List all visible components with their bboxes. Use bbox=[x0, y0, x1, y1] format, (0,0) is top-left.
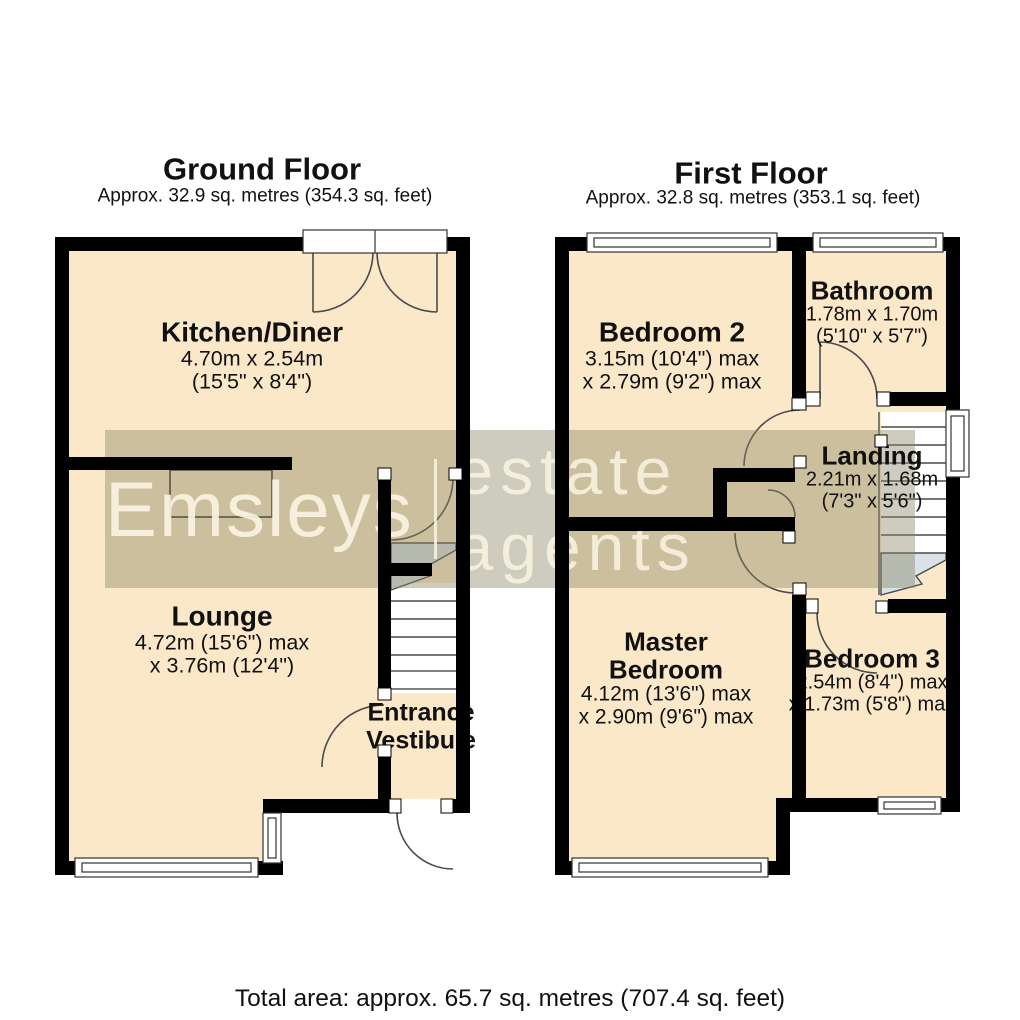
bedroom2-label: Bedroom 2 3.15m (10'4") max x 2.79m (9'2… bbox=[582, 318, 761, 395]
landing-dim-metric: 2.21m x 1.68m bbox=[806, 469, 938, 491]
kitchen-diner-dim-metric: 4.70m x 2.54m bbox=[161, 348, 343, 371]
lounge-dim-metric: 4.72m (15'6") max bbox=[135, 632, 309, 655]
ground-floor-title: Ground Floor bbox=[163, 152, 361, 185]
lounge-dim-imperial: x 3.76m (12'4") bbox=[135, 655, 309, 678]
landing-name: Landing bbox=[806, 441, 938, 469]
bedroom3-label: Bedroom 3 2.54m (8'4") max x 1.73m (5'8"… bbox=[789, 644, 956, 715]
bedroom2-dim-imperial: x 2.79m (9'2") max bbox=[582, 371, 761, 394]
bedroom3-dim-metric: 2.54m (8'4") max bbox=[789, 672, 956, 694]
lounge-name: Lounge bbox=[135, 602, 309, 632]
master-bedroom-label: Master Bedroom 4.12m (13'6") max x 2.90m… bbox=[579, 627, 754, 729]
bathroom-label: Bathroom 1.78m x 1.70m (5'10" x 5'7") bbox=[806, 276, 938, 347]
bathroom-dim-imperial: (5'10" x 5'7") bbox=[806, 326, 938, 348]
front-door-arc bbox=[397, 813, 453, 869]
total-area-text: Total area: approx. 65.7 sq. metres (707… bbox=[235, 986, 785, 1012]
kitchen-diner-name: Kitchen/Diner bbox=[161, 318, 343, 348]
first-floor-title: First Floor bbox=[674, 156, 827, 189]
entrance-vestibule-label: Entrance Vestibule bbox=[366, 700, 476, 755]
kitchen-diner-label: Kitchen/Diner 4.70m x 2.54m (15'5" x 8'4… bbox=[161, 318, 343, 395]
ground-floor-subtitle: Approx. 32.9 sq. metres (354.3 sq. feet) bbox=[98, 187, 433, 208]
master-bedroom-dim-imperial: x 2.90m (9'6") max bbox=[579, 706, 754, 729]
bedroom2-dim-metric: 3.15m (10'4") max bbox=[582, 348, 761, 371]
master-bedroom-name-line1: Master bbox=[579, 627, 754, 655]
bedroom2-name: Bedroom 2 bbox=[582, 318, 761, 348]
master-bedroom-dim-metric: 4.12m (13'6") max bbox=[579, 683, 754, 706]
floorplan-page: Emsleys estate agents Ground Floor Appro… bbox=[0, 0, 1020, 1020]
bathroom-dim-metric: 1.78m x 1.70m bbox=[806, 304, 938, 326]
master-bedroom-name-line2: Bedroom bbox=[579, 655, 754, 683]
bedroom3-dim-imperial: x 1.73m (5'8") max bbox=[789, 694, 956, 716]
entrance-vestibule-name-line2: Vestibule bbox=[366, 727, 476, 755]
landing-dim-imperial: (7'3" x 5'6") bbox=[806, 491, 938, 513]
landing-label: Landing 2.21m x 1.68m (7'3" x 5'6") bbox=[806, 441, 938, 512]
first-floor-subtitle: Approx. 32.8 sq. metres (353.1 sq. feet) bbox=[586, 189, 921, 210]
bedroom3-name: Bedroom 3 bbox=[789, 644, 956, 672]
kitchen-diner-dim-imperial: (15'5" x 8'4") bbox=[161, 371, 343, 394]
lounge-label: Lounge 4.72m (15'6") max x 3.76m (12'4") bbox=[135, 602, 309, 679]
bathroom-name: Bathroom bbox=[806, 276, 938, 304]
entrance-vestibule-name-line1: Entrance bbox=[366, 700, 476, 728]
